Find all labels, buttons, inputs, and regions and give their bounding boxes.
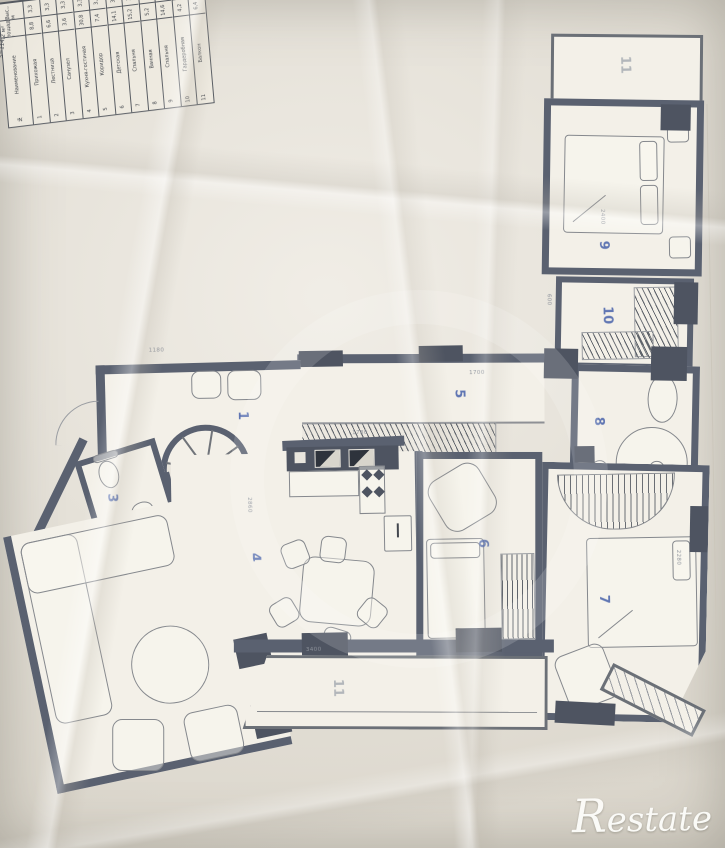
dimension-label: 2860 [246, 497, 252, 513]
explication-cell: 6,6 [41, 14, 58, 33]
dimension-label: 2400 [599, 209, 605, 225]
explication-cell: 3,6 [57, 12, 74, 31]
coffee-table-round [124, 618, 217, 711]
explication-cell: 8 [147, 95, 164, 110]
floor-plan: 11 9 10 8 7 [0, 0, 725, 848]
room-number: 1 [235, 411, 250, 420]
room-number: 10 [600, 306, 615, 324]
chair [319, 535, 348, 564]
room-number: 6 [475, 539, 490, 548]
room-number: 11 [617, 56, 632, 74]
wall-pier [660, 104, 690, 131]
pouf [227, 370, 262, 401]
explication-columns: 3,38,8Прихожая13,36,6Лестница23,33,6Сану… [22, 0, 213, 124]
faucet [397, 523, 399, 537]
room-number: 3 [104, 493, 119, 502]
clothes-rack [581, 331, 653, 360]
wall-pier [674, 282, 699, 324]
wall-pier [651, 346, 688, 381]
explication-cell: 1 [33, 109, 50, 124]
explication-cell: 7 [131, 97, 148, 112]
explication-cell: 7,4 [90, 8, 107, 27]
explication-cell: 6 [115, 99, 132, 114]
room-number: 8 [591, 417, 606, 426]
explication-cell: 4 [82, 103, 99, 118]
explication-cell: 14,6 [156, 0, 173, 18]
dimension-chain [706, 104, 716, 644]
explication-cell: 30,8 [74, 10, 91, 29]
pouf [191, 370, 221, 399]
clothes-rack [500, 553, 535, 640]
pillow [430, 542, 480, 559]
explication-cell: 3 [66, 105, 83, 120]
dimension-label: 1700 [469, 370, 485, 376]
explication-cell: 11 [197, 89, 214, 104]
explication-cell: 2 [49, 107, 66, 122]
dimension-label: 1180 [149, 347, 165, 353]
nightstand [669, 236, 691, 258]
wall-pier [555, 701, 616, 726]
dimension-label: 600 [546, 294, 552, 306]
room-balcony-bottom [243, 655, 548, 730]
room-number: 11 [330, 679, 345, 697]
restate-watermark: Restate [572, 787, 713, 843]
entry-door-swing [55, 401, 100, 446]
kitchen-sink-square [294, 452, 305, 463]
kitchen-appliance [314, 449, 340, 467]
room-number: 7 [596, 595, 611, 604]
wall-pier [419, 345, 463, 362]
wall-pier [689, 506, 708, 552]
dimension-label: 3400 [306, 647, 322, 653]
dimension-label: 2280 [675, 550, 681, 566]
explication-cell: 10 [180, 91, 197, 106]
explication-cell: 14,1 [107, 6, 124, 25]
kitchen-appliance [348, 449, 374, 467]
wall-pier [302, 632, 348, 657]
explication-cell: 9 [164, 93, 181, 108]
room-number: 9 [596, 241, 611, 250]
pillow [640, 185, 659, 225]
armchair [182, 703, 246, 763]
armchair [112, 719, 164, 771]
wall-south [234, 639, 554, 652]
wall-pier [456, 628, 502, 653]
kitchen-counter [289, 470, 359, 497]
dimension-label: 1780 [352, 430, 368, 436]
explication-cell: 15,2 [123, 4, 140, 23]
wall-pier [299, 350, 343, 367]
room-number: 5 [451, 389, 466, 398]
floor-plan-photo: 11 9 10 8 7 [0, 0, 725, 848]
explication-cell: 8,8 [25, 16, 42, 35]
wall-pier [544, 348, 579, 379]
explication-cell: 5 [98, 101, 115, 116]
explication-header: № [8, 111, 33, 127]
explication-cell: 5,2 [139, 2, 156, 21]
pillow [639, 141, 658, 181]
